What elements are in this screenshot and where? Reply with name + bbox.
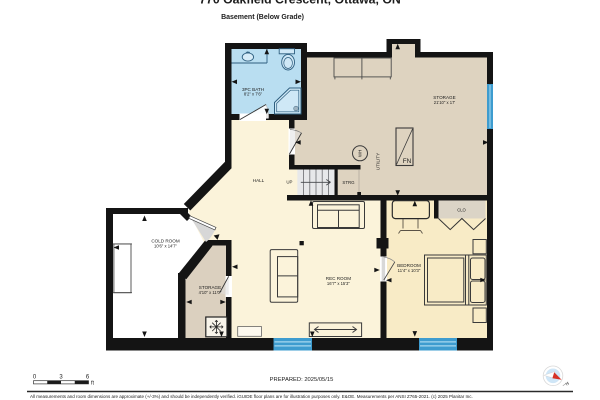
svg-text:8'2" x 7'6": 8'2" x 7'6" <box>244 92 263 97</box>
svg-text:11'4" x 10'3": 11'4" x 10'3" <box>398 268 421 273</box>
svg-text:Basement (Below Grade): Basement (Below Grade) <box>221 14 304 21</box>
svg-text:ft: ft <box>91 380 95 386</box>
svg-text:4'10" x 11'0": 4'10" x 11'0" <box>199 290 222 295</box>
svg-text:21'10" x 17': 21'10" x 17' <box>434 100 456 105</box>
svg-text:770 Oakfield Crescent, Ottawa,: 770 Oakfield Crescent, Ottawa, ON <box>199 0 401 6</box>
svg-text:UP: UP <box>286 180 292 185</box>
svg-text:STRG: STRG <box>342 180 355 185</box>
svg-text:10'6" x 14'7": 10'6" x 14'7" <box>154 243 177 248</box>
svg-text:CLO: CLO <box>457 208 466 213</box>
svg-text:All measurements and room dime: All measurements and room dimensions are… <box>30 394 473 399</box>
svg-text:HALL: HALL <box>253 178 265 183</box>
svg-text:16'7" x 15'3": 16'7" x 15'3" <box>327 281 350 286</box>
svg-text:FN: FN <box>403 158 412 165</box>
svg-text:WH: WH <box>358 150 363 157</box>
svg-text:PREPARED: 2025/05/15: PREPARED: 2025/05/15 <box>270 377 334 383</box>
svg-text:UTILITY: UTILITY <box>376 152 381 170</box>
